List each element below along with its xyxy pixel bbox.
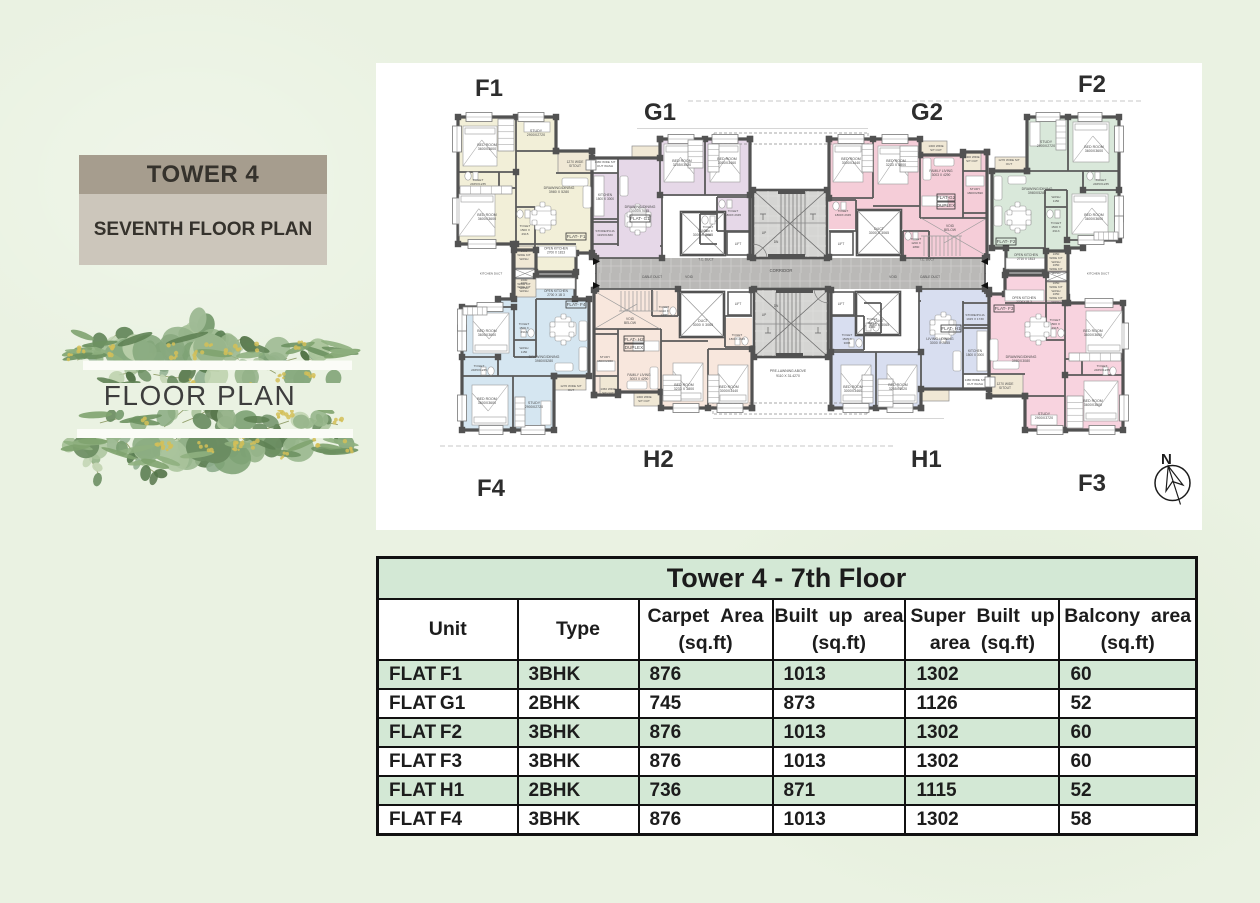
svg-text:1800X 2645: 1800X 2645 xyxy=(729,337,746,341)
svg-text:1150: 1150 xyxy=(521,350,528,354)
svg-text:FLAT- H1: FLAT- H1 xyxy=(941,326,961,331)
svg-text:LIFT: LIFT xyxy=(838,242,845,246)
svg-text:BELOW: BELOW xyxy=(944,228,957,232)
svg-text:3233 X 3800: 3233 X 3800 xyxy=(886,163,906,167)
svg-text:H2: H2 xyxy=(643,446,674,473)
svg-text:F3: F3 xyxy=(1078,470,1106,497)
svg-text:DN: DN xyxy=(774,304,779,308)
svg-text:UP: UP xyxy=(762,231,766,235)
svg-text:3000X3440: 3000X3440 xyxy=(842,161,860,165)
svg-text:3600X3600: 3600X3600 xyxy=(478,217,496,221)
svg-text:9110 X 31.4270: 9110 X 31.4270 xyxy=(776,374,800,378)
svg-text:FLAT- G1: FLAT- G1 xyxy=(630,216,650,221)
svg-text:WASH: WASH xyxy=(1052,271,1061,275)
svg-text:3600X3600: 3600X3600 xyxy=(478,147,496,151)
svg-text:FLAT- H2: FLAT- H2 xyxy=(624,337,644,342)
svg-text:2400: 2400 xyxy=(661,313,668,317)
svg-text:2465X1235: 2465X1235 xyxy=(470,182,486,186)
svg-text:3000X3460: 3000X3460 xyxy=(718,161,736,165)
svg-text:1800 X 3000: 1800 X 3000 xyxy=(966,353,984,357)
svg-text:1915X1660: 1915X1660 xyxy=(597,233,613,237)
svg-text:1915 X 1730: 1915 X 1730 xyxy=(966,317,984,321)
svg-text:1800X 2645: 1800X 2645 xyxy=(725,213,742,217)
svg-text:2465X1235: 2465X1235 xyxy=(1094,368,1110,372)
svg-text:1800X 2645: 1800X 2645 xyxy=(835,213,852,217)
svg-text:3600X3600: 3600X3600 xyxy=(1084,403,1102,407)
svg-text:LIFT: LIFT xyxy=(735,242,742,246)
svg-text:KITCHEN DUCT: KITCHEN DUCT xyxy=(1087,272,1110,276)
svg-text:KITCHEN DUCT: KITCHEN DUCT xyxy=(480,272,503,276)
svg-text:VOID: VOID xyxy=(889,275,897,279)
svg-text:3980 X 5280: 3980 X 5280 xyxy=(549,190,569,194)
svg-text:2710 X 1813: 2710 X 1813 xyxy=(1017,257,1035,261)
svg-text:2915: 2915 xyxy=(1052,326,1059,330)
svg-text:F1: F1 xyxy=(475,75,503,102)
svg-text:DUPLEX: DUPLEX xyxy=(625,345,643,350)
svg-text:CABLE DUCT: CABLE DUCT xyxy=(920,275,940,279)
svg-text:OUT: OUT xyxy=(568,388,575,392)
svg-text:SIT OUT: SIT OUT xyxy=(602,391,614,395)
svg-text:2900X3720: 2900X3720 xyxy=(1035,416,1053,420)
svg-text:3233 X 3800: 3233 X 3800 xyxy=(674,387,694,391)
svg-text:T.C. DUCT: T.C. DUCT xyxy=(919,258,934,262)
svg-text:1800 X 3000: 1800 X 3000 xyxy=(596,197,614,201)
svg-text:BELOW: BELOW xyxy=(624,321,637,325)
svg-text:OUT WASH: OUT WASH xyxy=(967,382,983,386)
svg-text:2913: 2913 xyxy=(1053,229,1060,233)
svg-text:3000X3440: 3000X3440 xyxy=(720,389,738,393)
svg-text:G2: G2 xyxy=(911,99,943,126)
svg-text:FLAT- F1: FLAT- F1 xyxy=(567,234,586,239)
svg-text:PRE-LAWNING ABOVE: PRE-LAWNING ABOVE xyxy=(770,369,807,373)
svg-text:2915: 2915 xyxy=(522,232,529,236)
svg-text:3095: 3095 xyxy=(844,341,851,345)
svg-text:F2: F2 xyxy=(1078,71,1106,98)
svg-text:1800X2960: 1800X2960 xyxy=(597,359,613,363)
svg-text:SIT OUT: SIT OUT xyxy=(638,399,650,403)
svg-text:2900X2720: 2900X2720 xyxy=(525,405,543,409)
svg-text:SIT OUT: SIT OUT xyxy=(966,159,978,163)
svg-text:UP: UP xyxy=(762,313,766,317)
svg-text:3000 X 3065: 3000 X 3065 xyxy=(869,231,889,235)
svg-text:2700 X 1813: 2700 X 1813 xyxy=(547,251,565,255)
svg-text:2465X1235: 2465X1235 xyxy=(471,368,487,372)
svg-text:3000 X 3065: 3000 X 3065 xyxy=(693,323,713,327)
svg-text:SITOUT: SITOUT xyxy=(569,164,581,168)
svg-text:3255X3020: 3255X3020 xyxy=(673,163,691,167)
svg-text:2900X2720: 2900X2720 xyxy=(527,133,545,137)
svg-text:WASH: WASH xyxy=(520,257,529,261)
svg-text:3000X3460: 3000X3460 xyxy=(844,389,862,393)
svg-text:F4: F4 xyxy=(477,475,506,502)
svg-text:FLAT- F4: FLAT- F4 xyxy=(567,302,586,307)
svg-text:DUPLEX: DUPLEX xyxy=(937,203,955,208)
svg-text:3600X3600: 3600X3600 xyxy=(1085,217,1103,221)
svg-text:2700X1B 3: 2700X1B 3 xyxy=(1016,300,1032,304)
svg-text:N: N xyxy=(1161,451,1172,468)
svg-text:SITOUT: SITOUT xyxy=(999,386,1011,390)
svg-text:DN: DN xyxy=(774,240,779,244)
svg-text:G1: G1 xyxy=(644,99,676,126)
svg-text:T.C. DUCT: T.C. DUCT xyxy=(698,258,713,262)
svg-text:SIT OUT: SIT OUT xyxy=(930,148,942,152)
svg-text:3255X3020: 3255X3020 xyxy=(889,387,907,391)
svg-text:2465X1235: 2465X1235 xyxy=(1093,182,1109,186)
svg-text:WASH: WASH xyxy=(520,289,529,293)
svg-text:CABLE DUCT: CABLE DUCT xyxy=(642,275,662,279)
svg-text:2913: 2913 xyxy=(521,330,528,334)
svg-text:2890: 2890 xyxy=(705,233,712,237)
svg-text:1150: 1150 xyxy=(1053,199,1060,203)
svg-text:3600X3600: 3600X3600 xyxy=(478,333,496,337)
svg-text:3600X3600: 3600X3600 xyxy=(1084,333,1102,337)
svg-text:FLAT- F2: FLAT- F2 xyxy=(997,239,1016,244)
svg-text:2400: 2400 xyxy=(869,325,876,329)
svg-text:3003 X 4290: 3003 X 4290 xyxy=(630,377,649,381)
svg-text:3980X5280: 3980X5280 xyxy=(535,359,553,363)
svg-text:VOID: VOID xyxy=(685,275,693,279)
svg-text:2890: 2890 xyxy=(913,245,920,249)
svg-text:FLAT- F3: FLAT- F3 xyxy=(995,306,1014,311)
svg-text:OUT: OUT xyxy=(1006,162,1013,166)
svg-text:2700 X 1B 3: 2700 X 1B 3 xyxy=(547,293,565,297)
svg-text:LIFT: LIFT xyxy=(735,302,742,306)
svg-text:H1: H1 xyxy=(911,446,942,473)
svg-text:LIFT: LIFT xyxy=(838,302,845,306)
svg-text:3980X5280: 3980X5280 xyxy=(1028,191,1046,195)
svg-text:WASH: WASH xyxy=(1052,300,1061,304)
svg-text:OUT WASH: OUT WASH xyxy=(597,164,613,168)
svg-text:CORRIDOR: CORRIDOR xyxy=(770,268,793,273)
svg-text:1800X2690: 1800X2690 xyxy=(967,191,983,195)
svg-text:3000 X 7055: 3000 X 7055 xyxy=(930,341,950,345)
svg-text:3003 X 4290: 3003 X 4290 xyxy=(932,173,951,177)
svg-text:3600X3600: 3600X3600 xyxy=(1085,149,1103,153)
svg-text:2900X2720: 2900X2720 xyxy=(1037,144,1055,148)
svg-text:3980X3080: 3980X3080 xyxy=(1012,359,1030,363)
svg-text:FLAT-G2: FLAT-G2 xyxy=(937,195,956,200)
svg-text:3000X7055: 3000X7055 xyxy=(631,209,649,213)
svg-text:3600X3600: 3600X3600 xyxy=(478,401,496,405)
